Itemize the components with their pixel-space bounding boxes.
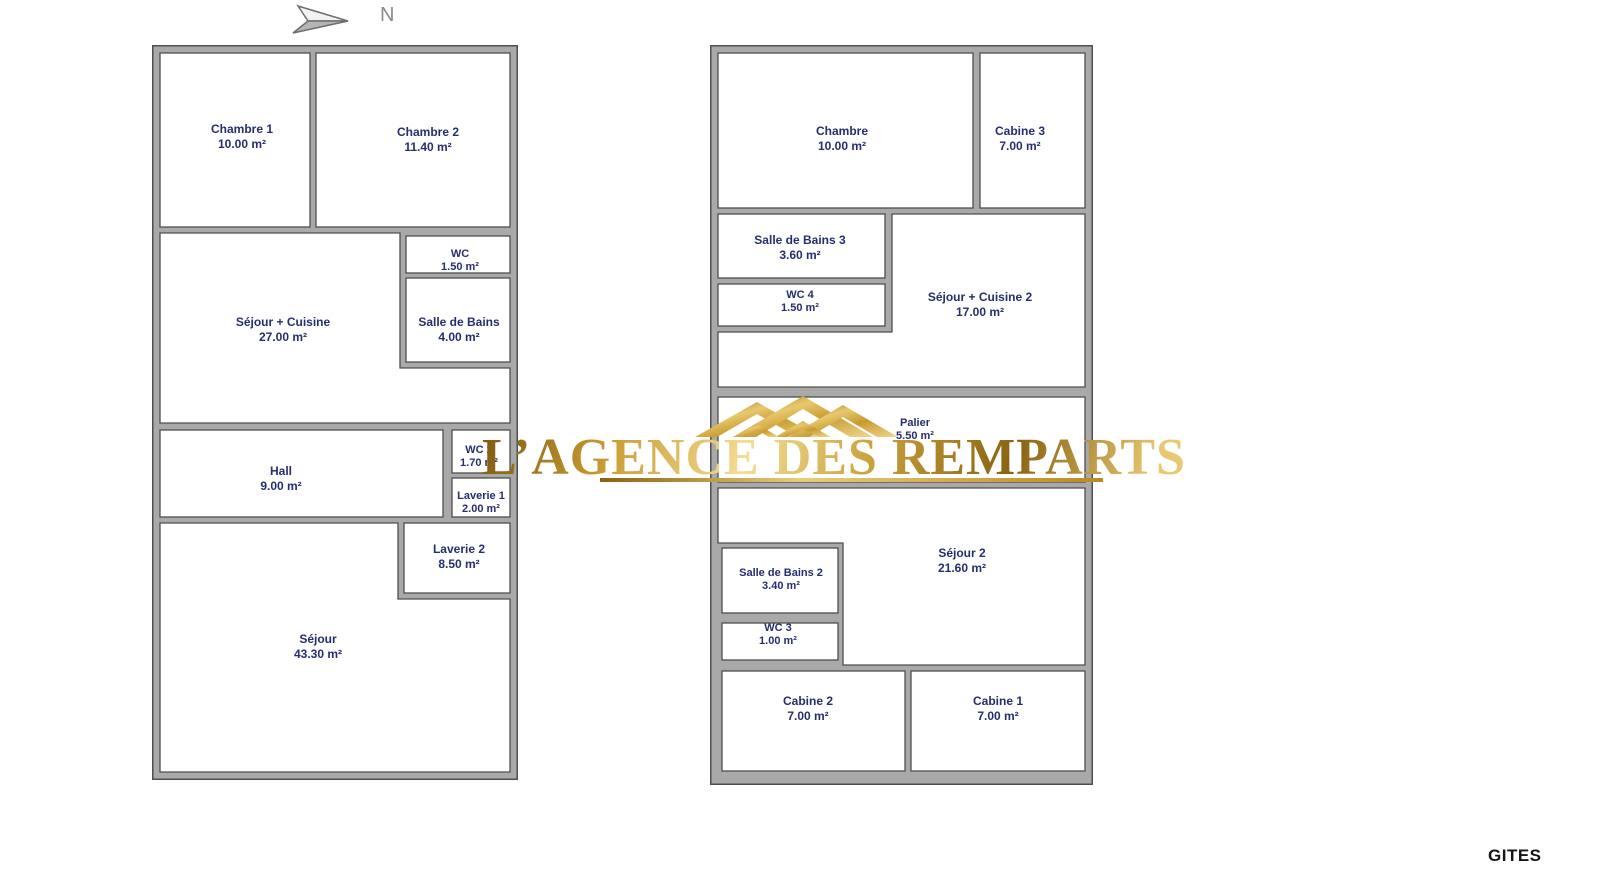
room-label-cabine-1: Cabine 1 7.00 m²: [973, 694, 1023, 724]
gites-label: GITES: [1488, 846, 1542, 866]
room-area: 8.50 m²: [433, 557, 485, 572]
room-area: 27.00 m²: [236, 330, 330, 345]
room-area: 7.00 m²: [973, 709, 1023, 724]
room-area: 17.00 m²: [928, 305, 1032, 320]
room-area: 4.00 m²: [418, 330, 499, 345]
north-arrow-icon: [288, 2, 358, 38]
room-area: 43.30 m²: [294, 647, 342, 662]
room-name: Hall: [260, 464, 301, 479]
room-name: Cabine 2: [783, 694, 833, 709]
room-label-sejour-cuisine: Séjour + Cuisine 27.00 m²: [236, 315, 330, 345]
room-label-chambre-1: Chambre 1 10.00 m²: [211, 122, 273, 152]
room-area: 11.40 m²: [397, 140, 459, 155]
room-label-chambre: Chambre 10.00 m²: [816, 124, 868, 154]
room-name: Séjour: [294, 632, 342, 647]
room-label-cabine-2: Cabine 2 7.00 m²: [783, 694, 833, 724]
room-label-salle-de-bains-2: Salle de Bains 2 3.40 m²: [739, 567, 823, 593]
room-name: Salle de Bains 3: [754, 233, 845, 248]
room-area: 7.00 m²: [995, 139, 1045, 154]
floor-plan-page: N Chambre 1 10.00 m² Chambre 2 11.40: [0, 0, 1600, 887]
room-name: Chambre: [816, 124, 868, 139]
room-area: 1.00 m²: [759, 635, 797, 648]
room-name: WC 4: [781, 289, 819, 302]
left-floor-plan: [152, 45, 518, 780]
room-name: Salle de Bains 2: [739, 567, 823, 580]
room-name: Séjour + Cuisine: [236, 315, 330, 330]
room-name: Chambre 1: [211, 122, 273, 137]
room-name: Laverie 1: [457, 490, 505, 503]
room-label-sejour: Séjour 43.30 m²: [294, 632, 342, 662]
room-label-hall: Hall 9.00 m²: [260, 464, 301, 494]
room-name: Laverie 2: [433, 542, 485, 557]
room-label-salle-de-bains-3: Salle de Bains 3 3.60 m²: [754, 233, 845, 263]
room-area: 1.50 m²: [441, 261, 479, 274]
room-label-salle-de-bains: Salle de Bains 4.00 m²: [418, 315, 499, 345]
room-name: Séjour 2: [938, 546, 986, 561]
north-arrow-upper: [298, 6, 348, 21]
room-name: WC: [441, 248, 479, 261]
room-name: Cabine 3: [995, 124, 1045, 139]
room-area: 21.60 m²: [938, 561, 986, 576]
room-area: 3.60 m²: [754, 248, 845, 263]
room-label-sejour-cuisine-2: Séjour + Cuisine 2 17.00 m²: [928, 290, 1032, 320]
room-area: 10.00 m²: [211, 137, 273, 152]
room-label-wc: WC 1.50 m²: [441, 248, 479, 274]
room-label-wc-4: WC 4 1.50 m²: [781, 289, 819, 315]
room-area: 10.00 m²: [816, 139, 868, 154]
room-name: Chambre 2: [397, 125, 459, 140]
compass-north-label: N: [380, 4, 395, 27]
room-area: 2.00 m²: [457, 503, 505, 516]
north-arrow-lower: [293, 21, 348, 33]
room-area: 9.00 m²: [260, 479, 301, 494]
room-area: 1.50 m²: [781, 302, 819, 315]
room-name: Salle de Bains: [418, 315, 499, 330]
room-area: 7.00 m²: [783, 709, 833, 724]
room-name: Séjour + Cuisine 2: [928, 290, 1032, 305]
room-label-sejour-2: Séjour 2 21.60 m²: [938, 546, 986, 576]
room-label-cabine-3: Cabine 3 7.00 m²: [995, 124, 1045, 154]
room-label-wc-3: WC 3 1.00 m²: [759, 622, 797, 648]
room-area: 3.40 m²: [739, 580, 823, 593]
watermark-underline: [600, 478, 1103, 482]
room-label-laverie-2: Laverie 2 8.50 m²: [433, 542, 485, 572]
room-label-chambre-2: Chambre 2 11.40 m²: [397, 125, 459, 155]
room-name: WC 3: [759, 622, 797, 635]
room-name: Cabine 1: [973, 694, 1023, 709]
room-label-laverie-1: Laverie 1 2.00 m²: [457, 490, 505, 516]
